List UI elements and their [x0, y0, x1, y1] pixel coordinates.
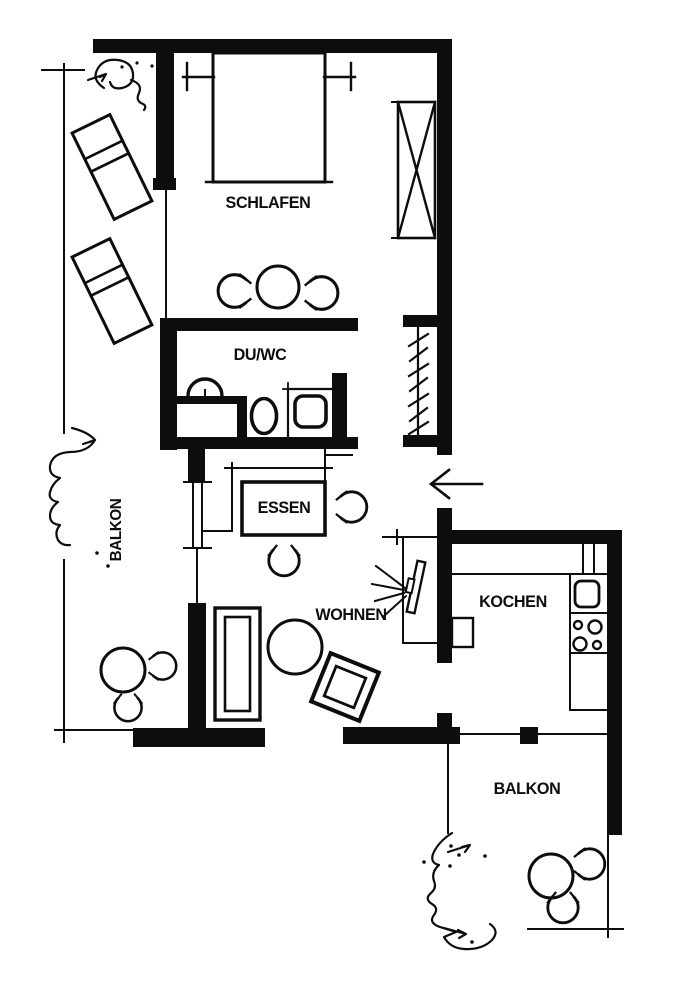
chair-icon [149, 652, 176, 679]
entry-arrow-icon [431, 470, 482, 498]
room-label-duwc: DU/WC [234, 345, 287, 365]
lounge-chair-icon [72, 115, 152, 220]
chair-icon [114, 694, 141, 721]
chair-icon [218, 275, 250, 308]
room-label-balkon-bottom: BALKON [494, 779, 561, 799]
room-label-wohnen: WOHNEN [315, 605, 386, 625]
shower-icon [283, 383, 332, 437]
fridge-icon [452, 618, 473, 647]
sofa-icon [215, 608, 260, 720]
double-bed-icon [206, 53, 332, 182]
armchair-icon [311, 653, 379, 721]
stove-icon [574, 621, 602, 651]
washbasin-icon [177, 379, 237, 404]
lounge-chair-icon [72, 239, 152, 344]
chair-icon [306, 277, 338, 310]
floorplan-canvas [0, 0, 698, 1000]
balcony-round-table-icon [101, 648, 145, 692]
kitchen-counter-icon [452, 544, 607, 710]
room-label-balkon-left: BALKON [108, 499, 126, 562]
floorplan-page: SCHLAFEN DU/WC BALKON ESSEN WOHNEN KOCHE… [0, 0, 698, 1000]
plant-icon [50, 428, 110, 568]
room-label-essen: ESSEN [258, 498, 311, 518]
wardrobe-icon [392, 102, 435, 238]
room-label-kochen: KOCHEN [479, 592, 547, 612]
coffee-table-icon [268, 620, 322, 674]
chair-icon [269, 546, 299, 576]
balcony-round-table-icon [529, 854, 573, 898]
room-label-schlafen: SCHLAFEN [226, 193, 311, 213]
chair-icon [548, 893, 578, 923]
kitchen-sink-icon [575, 581, 599, 607]
toilet-icon [252, 399, 277, 434]
chair-icon [575, 849, 605, 879]
nightstand-left-icon [183, 63, 214, 90]
plant-icon [88, 60, 154, 110]
nightstand-right-icon [324, 63, 355, 90]
chair-icon [337, 492, 367, 522]
bedroom-round-table-icon [257, 266, 299, 308]
coat-rack-icon [409, 327, 428, 435]
plant-icon [422, 833, 495, 949]
